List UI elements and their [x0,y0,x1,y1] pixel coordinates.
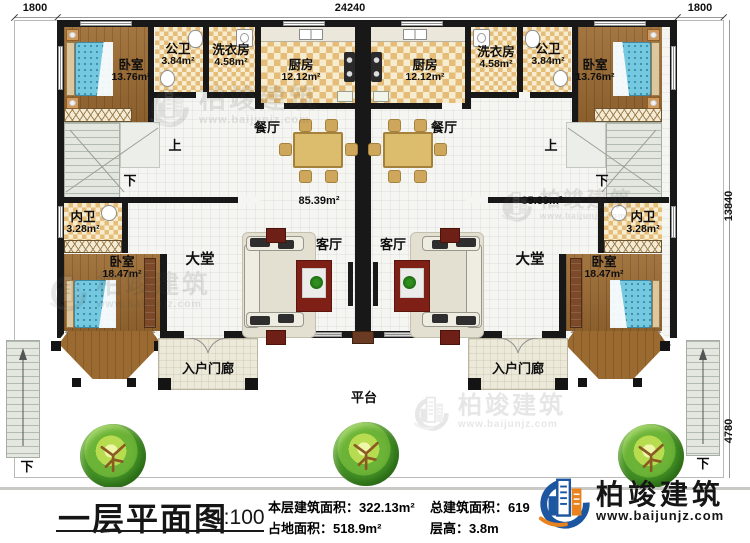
cushion [250,316,270,325]
bay-post [660,341,670,351]
dim-top-center: 24240 [335,2,366,14]
lamp [650,100,657,106]
label-bedroom-front-left: 卧室 13.76m² [111,58,150,84]
dining-table-left [293,132,343,168]
chair [345,143,358,156]
wardrobe-inner-bath-left [64,240,122,253]
label-hall-right: 大堂 [516,252,545,268]
label-kitchen-right: 厨房 12.12m² [405,58,444,84]
side-cabinet [440,330,460,345]
label-living-right: 客厅 [380,238,406,253]
tree [80,424,146,488]
door-swing-arc [496,338,540,354]
bed-headboard [66,280,74,328]
label-unit-area-right: 85.39m² [522,195,563,207]
nightstand [66,29,79,41]
label-laundry-left: 洗衣房 4.58m² [212,43,250,69]
window [671,46,676,90]
label-public-bath-left: 公卫 3.84m² [161,42,194,68]
plant [403,276,416,289]
chair [279,143,292,156]
label-stair-up-left: 上 [168,139,181,154]
tv [348,262,353,306]
dim-right-lower: 4780 [723,419,735,443]
chair [434,143,447,156]
nightstand [66,97,79,109]
label-porch-left: 入户门廊 [182,362,234,377]
dim-right-upper: 13840 [723,191,735,222]
label-bedroom-rear-left: 卧室 18.47m² [102,255,141,281]
door-opening [196,92,207,98]
page-title: 一层平面图 [58,494,228,540]
brand-name: 柏竣建筑 [596,473,724,513]
stat-storey-height: 层高：3.8m [430,518,499,537]
porch-post [555,378,568,390]
wardrobe-bedroom-front-left [64,108,132,122]
label-bedroom-rear-right: 卧室 18.47m² [584,255,623,281]
dimension-line-top [14,17,724,18]
bed-headboard [651,42,660,96]
label-dining-right: 餐厅 [431,121,457,136]
wall [160,254,167,331]
label-living-left: 客厅 [316,238,342,253]
side-cabinet [440,228,460,243]
wall [517,20,523,98]
scale-label: 1:100 [212,506,265,530]
label-platform: 平台 [351,391,377,406]
lamp [69,32,76,38]
floor-plan-canvas: 1800 24240 1800 13840 4780 [0,0,750,543]
door-swing-arc [186,338,230,354]
bay-post [72,378,81,387]
party-wall [355,20,371,331]
bay-post [51,341,61,351]
label-hall-left: 大堂 [186,252,215,268]
label-dining-left: 餐厅 [254,121,280,136]
porch-post [245,378,258,390]
chair [368,143,381,156]
title-underline [56,530,264,532]
chair [325,119,338,132]
window [58,206,63,238]
wardrobe-inner-bath-right [604,240,662,253]
chair [299,170,312,183]
chair [414,119,427,132]
kitchen-sink [403,29,427,40]
label-porch-right: 入户门廊 [492,362,544,377]
wardrobe [144,258,156,328]
wardrobe [570,258,582,328]
kitchen-sink [299,29,323,40]
label-inner-bath-left: 内卫 3.28m² [66,210,99,236]
door-opening [238,197,260,203]
label-unit-area-left: 85.39m² [299,195,340,207]
tree [333,422,399,486]
washer-drum [240,33,249,43]
cushion [278,314,294,323]
wall [542,331,566,338]
chair [299,119,312,132]
nightstand [647,29,660,41]
dimension-line-right [729,20,730,478]
wardrobe-bedroom-front-right [594,108,662,122]
wall [203,20,209,98]
dining-table-right [383,132,433,168]
bed-headboard [66,42,75,96]
party-wall-base [352,331,374,344]
lamp [650,32,657,38]
bath-fixture [611,205,627,221]
bed-headboard [652,280,660,328]
stair-arrow [6,340,40,458]
door-opening [466,197,488,203]
lamp [69,100,76,106]
brand-logo-icon [536,471,594,533]
tv [373,262,378,306]
window [58,46,63,90]
label-stair-down-left: 下 [123,174,136,189]
stair-flight-lines [566,122,662,198]
wall [466,197,669,203]
window [283,21,325,26]
stove [371,52,382,82]
label-stair-up-right: 上 [544,139,557,154]
cushion [456,316,476,325]
window [80,21,132,26]
plant [310,276,323,289]
dim-top-right: 1800 [688,2,712,14]
porch-post [468,378,481,390]
porch-post [158,378,171,390]
window [401,21,443,26]
sink [160,70,175,87]
wall [559,254,566,331]
chair [414,170,427,183]
bay-post [633,378,642,387]
stair-arrow [686,340,720,456]
label-ext-stair-down-left: 下 [20,460,33,475]
label-public-bath-right: 公卫 3.84m² [531,42,564,68]
wall [160,331,184,338]
stat-floor-area: 本层建筑面积：322.13m² [268,497,415,516]
wall [122,203,128,253]
label-stair-down-right: 下 [595,174,608,189]
chair [388,170,401,183]
stair-flight-lines [64,122,160,198]
sink [553,70,568,87]
window [594,21,646,26]
stat-total-area: 总建筑面积：619 [430,497,530,516]
label-kitchen-left: 厨房 12.12m² [281,58,320,84]
window [671,206,676,238]
label-inner-bath-right: 内卫 3.28m² [626,210,659,236]
washer-drum [477,33,486,43]
label-laundry-right: 洗衣房 4.58m² [477,45,515,71]
side-cabinet [266,330,286,345]
fridge [373,91,389,102]
door-opening [264,103,284,109]
bay-post [578,378,587,387]
fridge [337,91,353,102]
bay-post [127,378,136,387]
wall [598,203,604,253]
chair [388,119,401,132]
wall [57,197,260,203]
stat-footprint-area: 占地面积：518.9m² [268,518,381,537]
bath-fixture [101,205,117,221]
dim-top-left: 1800 [23,2,47,14]
brand-url: www.baijunjz.com [596,508,724,523]
door-opening [519,92,530,98]
cushion [432,314,448,323]
nightstand [647,97,660,109]
door-opening [442,103,462,109]
label-bedroom-front-right: 卧室 13.76m² [575,58,614,84]
chair [325,170,338,183]
label-ext-stair-down-right: 下 [696,457,709,472]
side-cabinet [266,228,286,243]
stove [344,52,355,82]
